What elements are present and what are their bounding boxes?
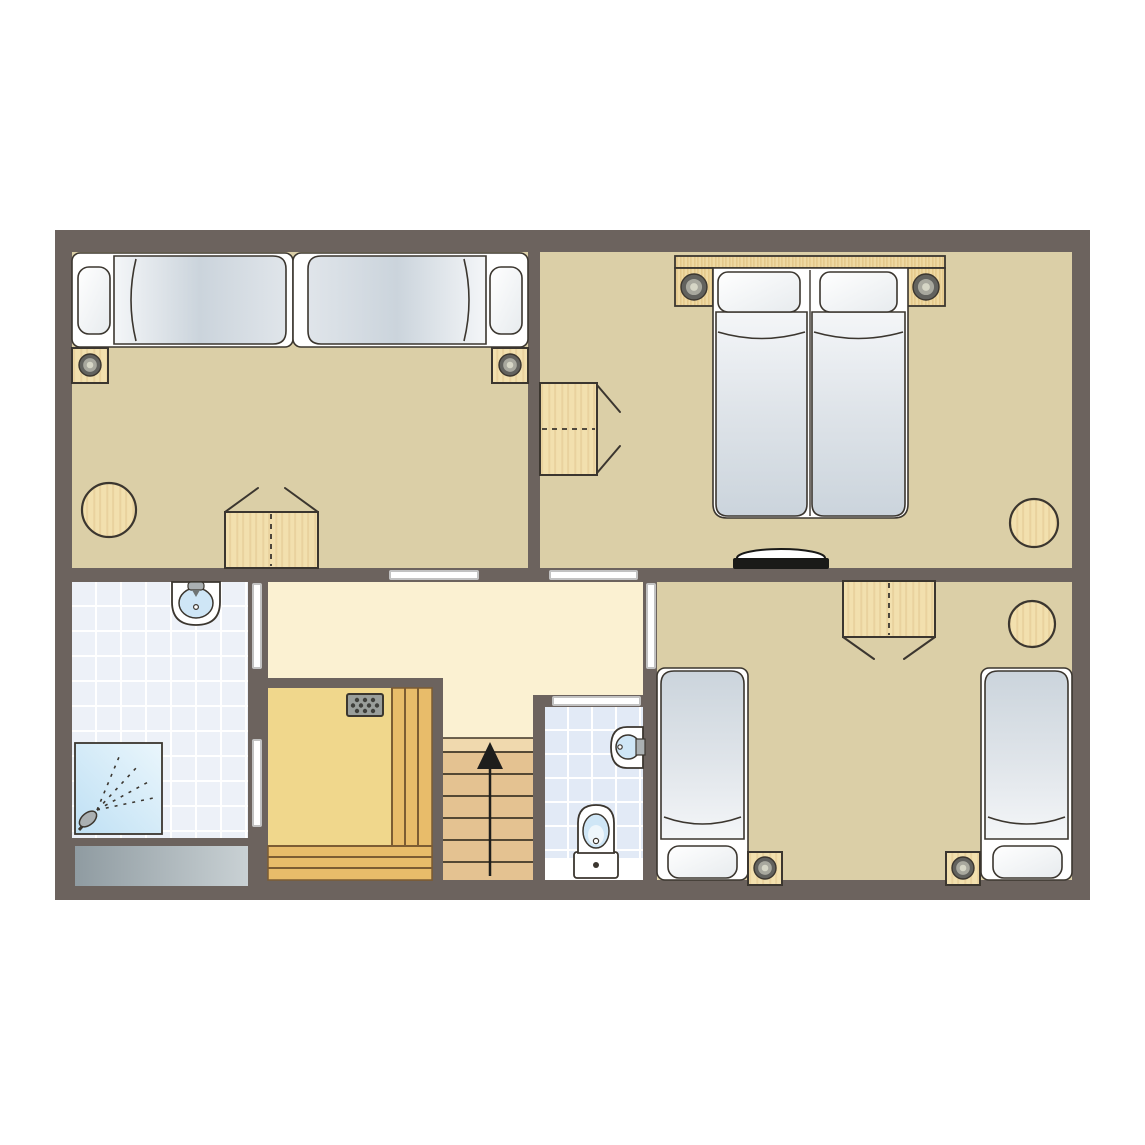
door-sauna [253,740,261,826]
floor-hallway-c [533,678,643,695]
door-bedroom-1 [390,571,478,579]
pillow [718,272,800,312]
pillow [820,272,897,312]
floor-plan-page [0,0,1145,1145]
stool-3 [1009,601,1055,647]
pillow [993,846,1062,878]
washbasin-wc [611,727,645,768]
shower [75,743,162,834]
staircase [443,738,533,880]
tap [188,582,204,590]
nightstand-3-left [748,852,782,885]
bed-1-left [72,253,293,347]
sauna-bench-bottom [268,846,432,880]
door-bathroom [253,584,261,668]
door-wc [553,697,640,705]
bed-1-right [293,253,528,347]
washbasin-bathroom [172,582,220,625]
stool-1 [82,483,136,537]
tv-2 [733,549,829,569]
bed-2-double [713,268,908,518]
nightstand-1-right [492,348,528,383]
floor-plan [0,0,1145,1145]
door-bedroom-3 [647,584,655,668]
pillow [78,267,110,334]
pillow [668,846,737,878]
bed-3-left [657,668,748,880]
nightstand-3-right [946,852,980,885]
sauna-stove [347,694,383,716]
floor-hallway-b [443,678,533,738]
floor-hallway-a [268,582,643,678]
tap [636,739,645,755]
stool-2 [1010,499,1058,547]
bathroom-window [75,846,248,886]
nightstand-1-left [72,348,108,383]
bed-3-right [981,668,1072,880]
pillow [490,267,522,334]
door-bedroom-2 [550,571,637,579]
